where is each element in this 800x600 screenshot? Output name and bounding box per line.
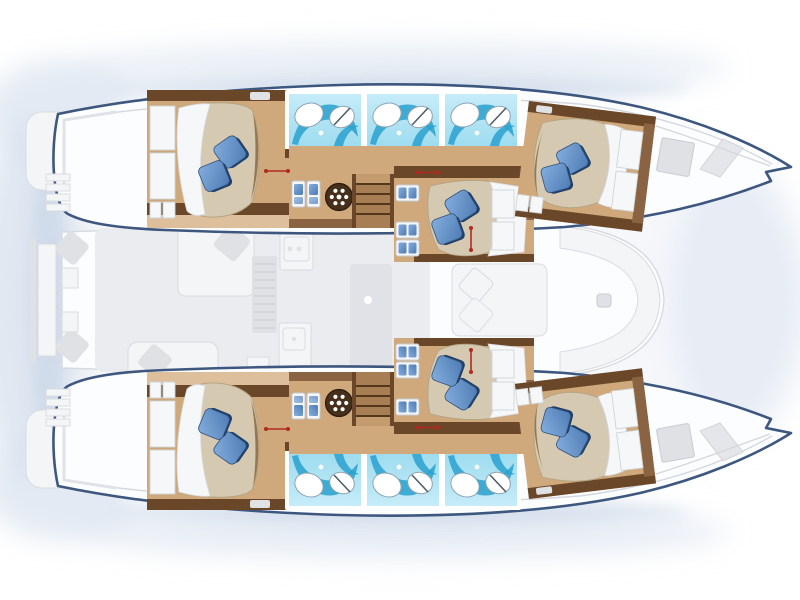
catamaran-floor-plan: Top-view accommodation plan of a sailing… [0, 0, 800, 600]
side-table [62, 312, 78, 332]
aft-walkway [38, 244, 56, 356]
mast-foot [364, 296, 372, 304]
aft-beam [30, 238, 36, 362]
table-top [350, 264, 392, 372]
side-table [62, 268, 78, 288]
central-sunpad [452, 264, 547, 336]
cockpit-fixture [597, 294, 611, 307]
table-top [252, 256, 277, 333]
floor-plan-canvas: Top-view accommodation plan of a sailing… [0, 0, 800, 600]
drain [292, 337, 296, 341]
faucet [297, 247, 302, 252]
sunpad-body [452, 264, 547, 336]
coachroof-table [350, 264, 392, 372]
dining-table [252, 256, 277, 333]
faucet [288, 247, 293, 252]
